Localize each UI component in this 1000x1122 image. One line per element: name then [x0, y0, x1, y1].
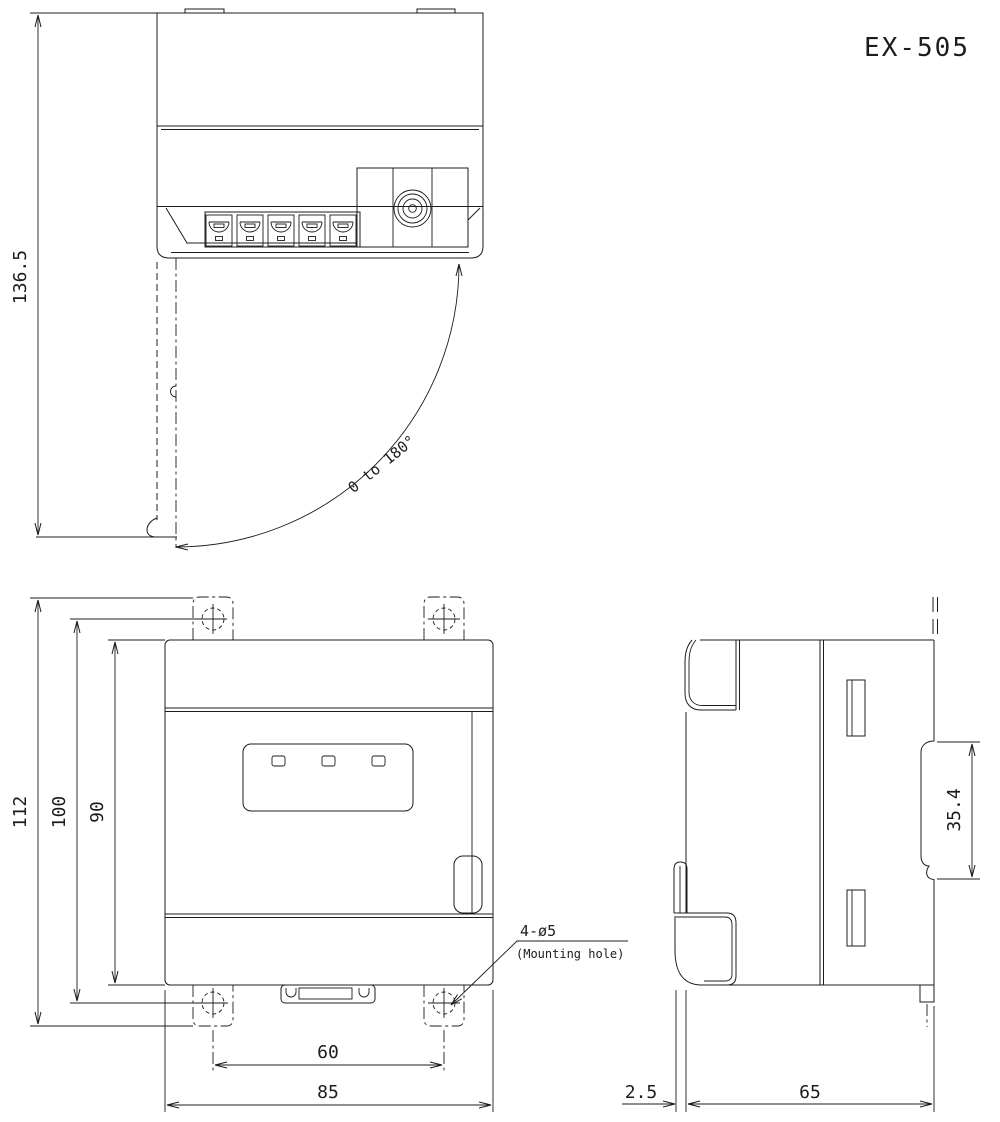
connector-ring-inner — [403, 199, 422, 218]
front-top-seam — [165, 708, 493, 712]
terminal-cell — [206, 215, 232, 246]
top-view-seam — [157, 126, 483, 130]
top-view-tray-contour — [166, 208, 480, 243]
side-slot-upper — [847, 680, 865, 736]
connector-pin — [409, 205, 417, 213]
mounting-hole-note: (Mounting hole) — [516, 947, 624, 961]
dimension-drawing: 0 to 180° 136.5 — [0, 0, 1000, 1122]
mounting-hole-spec: 4-ø5 — [520, 922, 556, 940]
door-open-tip-curl — [147, 518, 157, 537]
terminal-strip — [205, 212, 360, 247]
connector-ring-outer — [394, 190, 431, 227]
dim-side-front-offset: 2.5 — [625, 1082, 658, 1103]
top-view-cover-tab-right — [417, 9, 455, 13]
top-view-cover-tab-left — [185, 9, 224, 13]
side-upper-door — [685, 640, 740, 710]
mounting-tab-bottom-left — [193, 985, 233, 1072]
side-body-outline — [686, 640, 934, 985]
display-window — [243, 744, 413, 811]
indicator-window-1 — [272, 756, 285, 766]
dim-side-depth: 65 — [799, 1082, 821, 1103]
dim-side-din-recess: 35.4 — [944, 788, 965, 831]
side-view: 35.4 2.5 65 — [622, 597, 980, 1112]
connector-housing — [357, 168, 468, 247]
din-latch-bottom — [920, 985, 934, 1002]
side-lower-door — [674, 862, 736, 985]
din-rail-recess — [921, 640, 934, 985]
front-body-outline — [165, 640, 493, 985]
side-slot-lower — [847, 890, 865, 946]
model-title: EX-505 — [864, 33, 970, 63]
front-bottom-seam — [165, 914, 493, 918]
technical-drawing-page: 0 to 180° 136.5 — [0, 0, 1000, 1122]
indicator-window-2 — [322, 756, 335, 766]
door-swing-arc — [176, 264, 459, 547]
terminal-cell — [299, 215, 325, 246]
door-latch-profile — [674, 862, 687, 913]
connector-housing-outline — [357, 168, 468, 247]
indicator-window-3 — [372, 756, 385, 766]
dim-front-overall-height: 112 — [10, 796, 31, 829]
dim-top-overall-height: 136.5 — [10, 250, 31, 304]
front-hinge-slot — [454, 856, 482, 913]
dim-front-hole-pitch-vertical: 100 — [49, 796, 70, 829]
terminal-cell — [330, 215, 356, 246]
door-knob-profile — [171, 386, 177, 397]
terminal-cell — [237, 215, 263, 246]
top-view: 0 to 180° 136.5 — [10, 9, 483, 548]
dim-front-body-width: 85 — [317, 1082, 339, 1103]
dim-136-extension-lines — [30, 13, 177, 537]
mounting-tab-top-left — [193, 597, 233, 640]
front-view: 112 100 90 60 85 4-ø5 (Mounting hole) — [10, 597, 628, 1112]
dim-front-hole-pitch-horizontal: 60 — [317, 1042, 339, 1063]
terminal-cell — [268, 215, 294, 246]
side-section-divider — [820, 640, 824, 985]
mounting-tab-top-right — [424, 597, 464, 640]
dim-90-extension-lines — [108, 640, 165, 985]
connector-ring-mid — [398, 194, 427, 223]
dim-door-swing: 0 to 180° — [345, 432, 419, 497]
bottom-connector — [281, 985, 375, 1003]
din-rail-tab-top — [933, 597, 938, 640]
dim-front-body-height: 90 — [87, 801, 108, 823]
